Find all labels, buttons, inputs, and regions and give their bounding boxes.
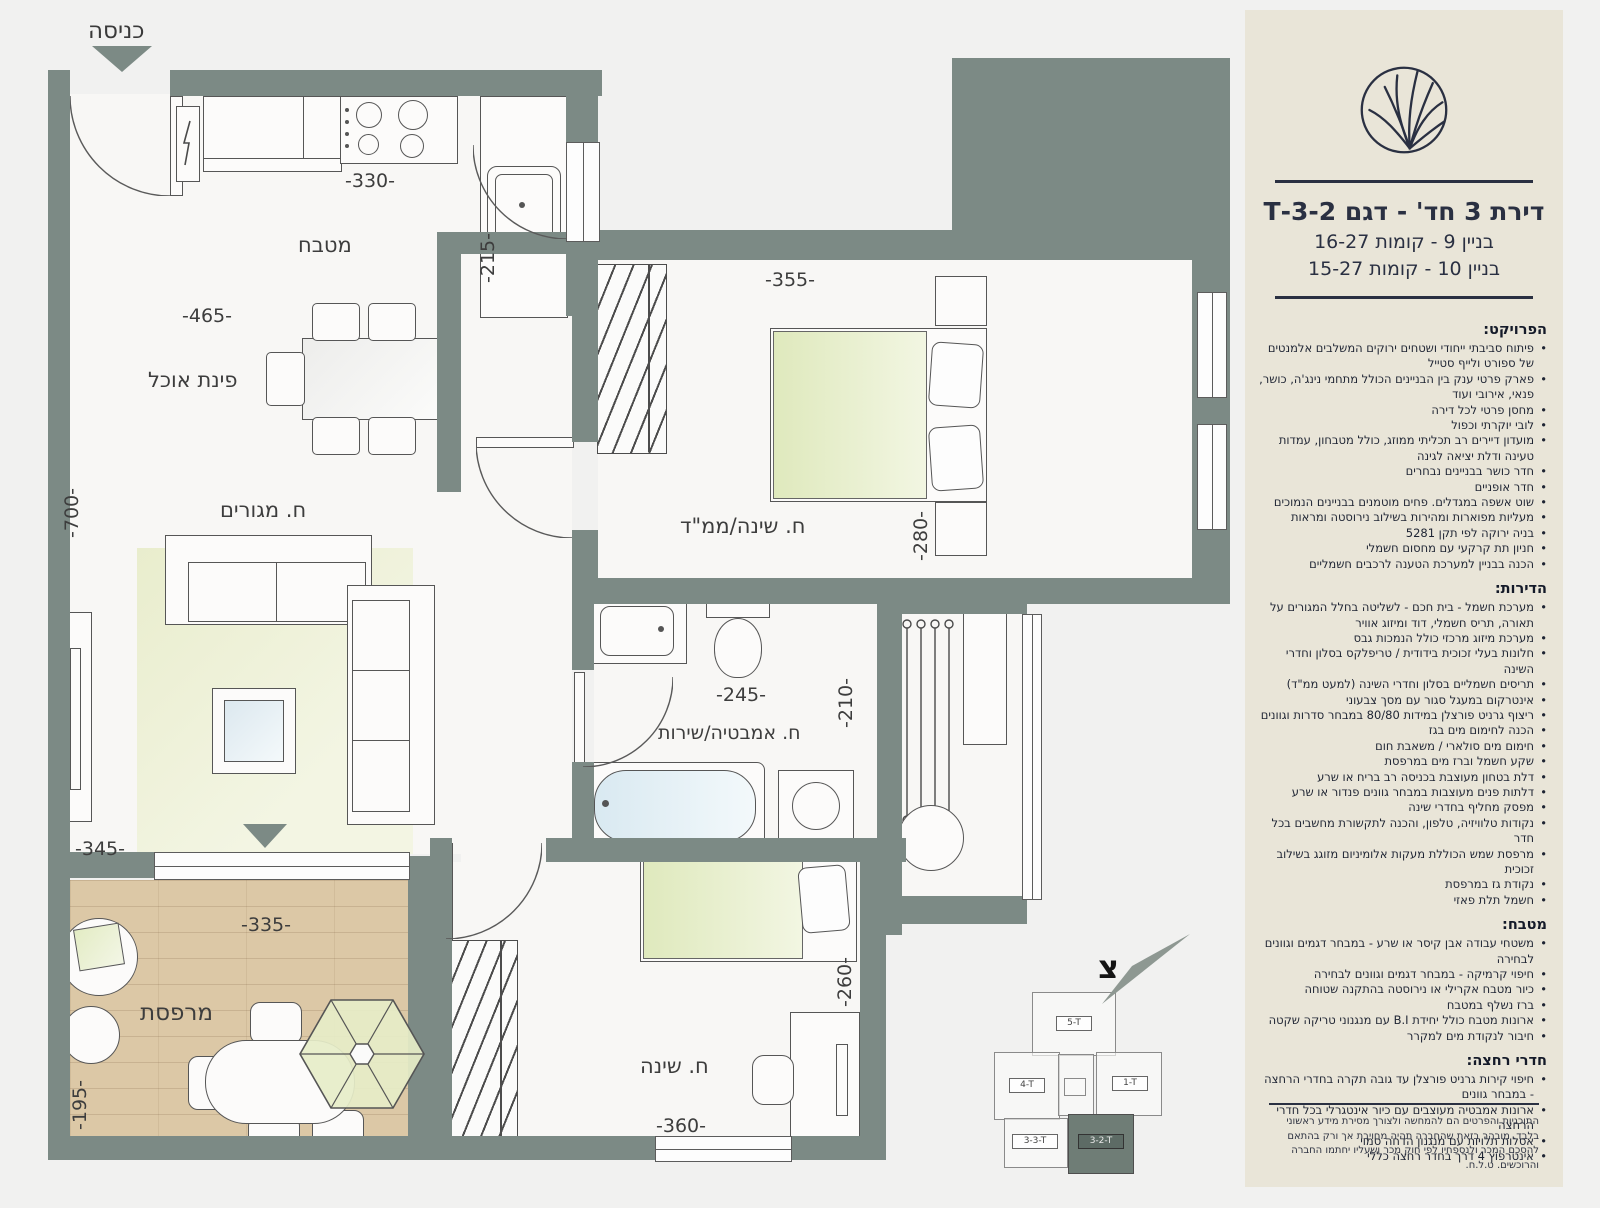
wardrobe-rail bbox=[500, 940, 502, 1140]
feature-item: מרפסת שמש הכוללת מעקות אלומיניום מזוגג ב… bbox=[1259, 847, 1547, 878]
feature-item: מחסן פרטי לכל דירה bbox=[1259, 403, 1547, 418]
room-label-kitchen: מטבח bbox=[298, 233, 352, 257]
electrical-panel bbox=[176, 106, 200, 182]
feature-item: כיור מטבח אקרילי או נירוסטה בהתקנה שטוחה bbox=[1259, 982, 1547, 997]
project-logo-icon bbox=[1356, 62, 1452, 158]
section-list-kitchen: משטחי עבודה אבן קיסר או שרע - במבחר דגמי… bbox=[1259, 936, 1547, 1044]
kitchen-window bbox=[566, 142, 600, 242]
faucet-dot bbox=[658, 626, 664, 632]
wardrobe-rail bbox=[648, 264, 650, 452]
feature-item: דלתות פנים מעוצבות במבחר גוונים פנדור או… bbox=[1259, 785, 1547, 800]
section-list-project: פיתוח סביבתי ייחודי ושטחים ירוקים המשלבי… bbox=[1259, 341, 1547, 572]
dim-195: -195- bbox=[69, 1075, 91, 1135]
dining-table bbox=[302, 338, 439, 420]
room-label-balcony: מרפסת bbox=[140, 1000, 213, 1026]
master-door-arc bbox=[476, 442, 572, 538]
feature-item: מפסק מחליף בחדרי שינה bbox=[1259, 800, 1547, 815]
dim-210: -210- bbox=[835, 673, 857, 733]
feature-item: שוט אשפה במגדלים. פחים מוטמנים בבניינים … bbox=[1259, 495, 1547, 510]
keyplan-label: 4-T bbox=[1009, 1078, 1045, 1093]
keyplan-core-cell bbox=[1064, 1078, 1086, 1096]
nightstand bbox=[935, 502, 987, 556]
wall bbox=[877, 596, 1027, 614]
kitchen-counter-edge bbox=[203, 158, 342, 172]
feature-item: חימום מים סולארי / משאבת חום bbox=[1259, 739, 1547, 754]
entry-door-arc bbox=[70, 96, 170, 196]
dining-chair bbox=[368, 303, 416, 341]
washing-machine-drum bbox=[792, 782, 840, 830]
pillow bbox=[928, 341, 984, 408]
stove-burner bbox=[398, 100, 428, 130]
room-label-living: ח. מגורים bbox=[220, 498, 306, 522]
balcony-sliding-door bbox=[154, 852, 410, 880]
dim-700: -700- bbox=[61, 483, 83, 543]
feature-item: בניה ירוקה לפי תקן 5281 bbox=[1259, 526, 1547, 541]
wall bbox=[572, 530, 598, 580]
dim-345: -345- bbox=[60, 838, 140, 860]
feature-item: לובי יוקרתי וכפול bbox=[1259, 418, 1547, 433]
kitchen-door-arc bbox=[473, 145, 567, 239]
feature-item: חיפוי קרמיקה - במבחר דגמים וגוונים לבחיר… bbox=[1259, 967, 1547, 982]
faucet-dot bbox=[602, 800, 609, 807]
pillow bbox=[928, 424, 984, 491]
stove-knob bbox=[345, 120, 349, 124]
feature-item: מועדון דיירים רב תכליתי ממוזג, כולל מטבח… bbox=[1259, 433, 1547, 464]
feature-item: חדר אופניים bbox=[1259, 480, 1547, 495]
desk bbox=[790, 1012, 860, 1140]
dim-465: -465- bbox=[167, 305, 247, 327]
stove-burner bbox=[358, 134, 379, 155]
bed-blanket bbox=[773, 331, 927, 499]
feature-item: משטחי עבודה אבן קיסר או שרע - במבחר דגמי… bbox=[1259, 936, 1547, 967]
desk-detail bbox=[836, 1044, 848, 1116]
disclaimer-text: התוכניות והפרטים הם להמחשה ולצורך מסירת … bbox=[1269, 1115, 1539, 1173]
section-heading-apartments: הדירות: bbox=[1259, 581, 1547, 597]
sofa-cushion bbox=[352, 670, 410, 742]
dim-360: -360- bbox=[641, 1115, 721, 1137]
feature-item: הכנה בבניין למערכת הטענה לרכבים חשמליים bbox=[1259, 557, 1547, 572]
section-heading-project: הפרויקט: bbox=[1259, 322, 1547, 338]
wall bbox=[572, 252, 598, 442]
feature-item: חיפוי קירות גרניט פורצלן עד גובה תקרה בח… bbox=[1259, 1072, 1547, 1103]
service-balcony-window bbox=[1022, 614, 1042, 900]
stove-knob bbox=[345, 108, 349, 112]
sofa-cushion bbox=[188, 562, 278, 622]
feature-item: חשמל תלת פאזי bbox=[1259, 893, 1547, 908]
stove-burner bbox=[356, 102, 382, 128]
wall bbox=[1192, 230, 1230, 590]
divider bbox=[1269, 1103, 1539, 1106]
feature-item: מעליות מפוארות ומהירות בשילוב נירוסטה ומ… bbox=[1259, 510, 1547, 525]
lightning-icon bbox=[177, 107, 199, 181]
north-letter: צ bbox=[1098, 948, 1119, 986]
wall bbox=[598, 230, 1230, 260]
wall bbox=[437, 232, 461, 492]
building-line-2: בניין 10 - קומות 15-27 bbox=[1245, 258, 1563, 280]
wall bbox=[546, 838, 906, 862]
feature-item: ארונות מטבח כולל יחידת B.I עם מנגנוני טר… bbox=[1259, 1013, 1547, 1028]
dim-335: -335- bbox=[226, 914, 306, 936]
feature-item: חדר כושר בבניינים נבחרים bbox=[1259, 464, 1547, 479]
feature-item: מערכת מיזוג מרכזי כולל הנמכות גבס bbox=[1259, 631, 1547, 646]
coffee-table-top bbox=[224, 700, 284, 762]
feature-item: תריסים חשמליים בסלון וחדרי השינה (למעט מ… bbox=[1259, 677, 1547, 692]
tv-screen bbox=[70, 648, 81, 790]
wardrobe bbox=[597, 264, 667, 454]
keyplan-label: 3-3-T bbox=[1012, 1134, 1058, 1149]
floor-corridor bbox=[461, 252, 572, 864]
feature-item: פארק פרטי ענק בין הבניינים הכולל מתחמי נ… bbox=[1259, 372, 1547, 403]
wall bbox=[566, 96, 598, 142]
bedroom2-door-arc bbox=[446, 843, 542, 939]
sofa-cushion bbox=[352, 600, 410, 672]
room-label-master: ח. שינה/ממ"ד bbox=[680, 514, 806, 538]
lounge-cushion bbox=[73, 923, 125, 972]
dining-chair bbox=[312, 417, 360, 455]
nightstand bbox=[935, 276, 987, 326]
panel-footer: התוכניות והפרטים הם להמחשה ולצורך מסירת … bbox=[1269, 1103, 1539, 1174]
bathtub-basin bbox=[594, 770, 756, 842]
section-heading-kitchen: מטבח: bbox=[1259, 917, 1547, 933]
master-window bbox=[1197, 292, 1227, 398]
room-label-dining: פינת אוכל bbox=[148, 368, 238, 392]
feature-item: ריצוף גרניט פורצלן במידות 80/80 במבחר סד… bbox=[1259, 708, 1547, 723]
dim-245: -245- bbox=[701, 684, 781, 706]
entry-arrow-icon bbox=[92, 46, 152, 72]
water-boiler bbox=[898, 805, 964, 871]
pillow bbox=[797, 864, 851, 934]
dining-chair bbox=[312, 303, 360, 341]
feature-item: חניון תת קרקעי עם מחסום חשמלי bbox=[1259, 541, 1547, 556]
room-label-bath: ח. אמבטיה/שירות bbox=[658, 722, 801, 744]
keyplan-label-highlighted: 3-2-T bbox=[1078, 1134, 1124, 1149]
stove-knob bbox=[345, 132, 349, 136]
wall-building-mass bbox=[952, 58, 1230, 234]
wall bbox=[572, 604, 594, 670]
keyplan-label: 5-T bbox=[1056, 1016, 1092, 1031]
feature-item: שקע חשמל וברז מים במרפסת bbox=[1259, 754, 1547, 769]
dim-215: -215- bbox=[477, 228, 499, 288]
dim-355: -355- bbox=[750, 269, 830, 291]
toilet-bowl bbox=[714, 618, 762, 678]
building-line-1: בניין 9 - קומות 16-27 bbox=[1245, 231, 1563, 253]
bed-blanket bbox=[643, 855, 803, 959]
wall bbox=[170, 70, 602, 96]
sofa-cushion bbox=[352, 740, 410, 812]
feature-item: חלונות בעלי זכוכית בידודית / טריפלקס בסל… bbox=[1259, 646, 1547, 677]
dim-330: -330- bbox=[330, 170, 410, 192]
spec-sections: הפרויקט: פיתוח סביבתי ייחודי ושטחים ירוק… bbox=[1245, 299, 1563, 1165]
wall bbox=[48, 70, 70, 1160]
feature-item: אינטרקום במעגל סגור עם מסך צבעוני bbox=[1259, 693, 1547, 708]
room-label-bed2: ח. שינה bbox=[640, 1054, 709, 1078]
kitchen-cabinet bbox=[203, 96, 305, 160]
kitchen-cabinet bbox=[303, 96, 342, 160]
feature-item: חיבור לנקודת מים למקרר bbox=[1259, 1029, 1547, 1044]
floorplan-page: כניסה bbox=[0, 0, 1600, 1208]
entry-label: כניסה bbox=[88, 18, 144, 44]
dining-chair bbox=[368, 417, 416, 455]
stove-knob bbox=[345, 144, 349, 148]
wall bbox=[48, 1136, 430, 1160]
section-heading-bathrooms: חדרי רחצה: bbox=[1259, 1053, 1547, 1069]
divider bbox=[1275, 180, 1533, 183]
feature-item: נקודות טלוויזיה, טלפון, והכנה לתקשורת מח… bbox=[1259, 816, 1547, 847]
bedroom2-window bbox=[655, 1136, 792, 1162]
wardrobe bbox=[450, 940, 518, 1142]
apartment-title: דירת 3 חד' - דגם 3-2-T bbox=[1245, 197, 1563, 226]
master-window bbox=[1197, 424, 1227, 530]
feature-item: ברז נשלף במטבח bbox=[1259, 998, 1547, 1013]
patio-chair bbox=[250, 1002, 302, 1044]
keyplan-label: 1-T bbox=[1112, 1076, 1148, 1091]
stove-burner bbox=[400, 134, 424, 158]
dining-chair bbox=[266, 352, 305, 406]
feature-item: פיתוח סביבתי ייחודי ושטחים ירוקים המשלבי… bbox=[1259, 341, 1547, 372]
feature-item: דלת בטחון מעוצבת בכניסה רב בריח או שרע bbox=[1259, 770, 1547, 785]
side-table bbox=[62, 1006, 120, 1064]
feature-item: הכנה לחימום מים בגז bbox=[1259, 723, 1547, 738]
feature-item: נקודת גז במרפסת bbox=[1259, 877, 1547, 892]
balcony-direction-arrow bbox=[243, 824, 287, 848]
patio-umbrella bbox=[296, 982, 428, 1124]
dim-280: -280- bbox=[910, 506, 932, 566]
section-list-apartments: מערכת חשמל - בית חכם - לשליטה בחלל המגור… bbox=[1259, 600, 1547, 908]
wall bbox=[48, 70, 70, 96]
ac-unit bbox=[963, 611, 1007, 745]
desk-chair bbox=[752, 1055, 794, 1105]
dim-260: -260- bbox=[834, 952, 856, 1012]
info-panel: דירת 3 חד' - דגם 3-2-T בניין 9 - קומות 1… bbox=[1245, 10, 1563, 1187]
wall bbox=[877, 896, 1027, 924]
feature-item: מערכת חשמל - בית חכם - לשליטה בחלל המגור… bbox=[1259, 600, 1547, 631]
